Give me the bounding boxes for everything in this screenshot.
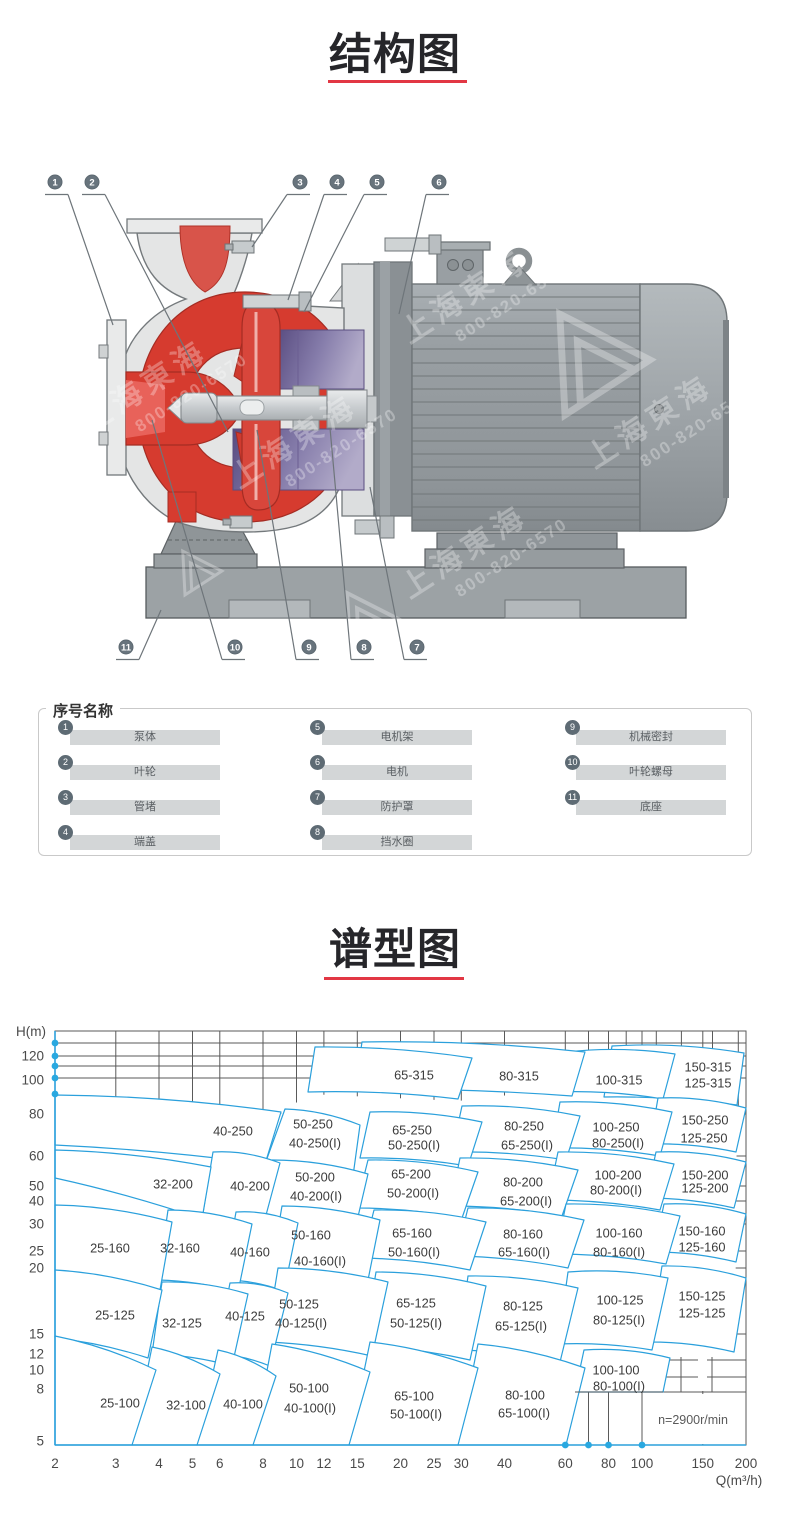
svg-text:5: 5	[189, 1456, 197, 1471]
svg-text:65-160: 65-160	[392, 1226, 432, 1241]
svg-text:25-100: 25-100	[100, 1396, 140, 1411]
svg-text:125-200: 125-200	[682, 1181, 729, 1196]
svg-text:50-160: 50-160	[291, 1228, 331, 1243]
svg-text:25: 25	[426, 1456, 441, 1471]
svg-text:50-200: 50-200	[295, 1170, 335, 1185]
svg-text:100-100: 100-100	[593, 1363, 640, 1378]
svg-text:125-160: 125-160	[679, 1240, 726, 1255]
svg-text:25: 25	[29, 1244, 44, 1259]
svg-text:65-200: 65-200	[391, 1167, 431, 1182]
svg-text:50-160(I): 50-160(I)	[388, 1245, 440, 1260]
svg-text:150-315: 150-315	[685, 1060, 732, 1075]
svg-text:100: 100	[631, 1456, 654, 1471]
svg-text:40-100: 40-100	[223, 1397, 263, 1412]
svg-text:2: 2	[89, 178, 94, 189]
svg-text:100-315: 100-315	[596, 1073, 643, 1088]
svg-text:40-125: 40-125	[225, 1309, 265, 1324]
svg-text:60: 60	[29, 1149, 44, 1164]
svg-text:200: 200	[735, 1456, 758, 1471]
svg-text:40-100(I): 40-100(I)	[284, 1401, 336, 1416]
svg-text:40-160: 40-160	[230, 1245, 270, 1260]
svg-text:80-200: 80-200	[503, 1175, 543, 1190]
svg-text:80-125: 80-125	[503, 1299, 543, 1314]
svg-text:1: 1	[52, 178, 58, 189]
svg-text:150: 150	[692, 1456, 715, 1471]
svg-text:50-200(I): 50-200(I)	[387, 1186, 439, 1201]
svg-text:40-200: 40-200	[230, 1179, 270, 1194]
svg-text:40-250: 40-250	[213, 1124, 253, 1139]
svg-text:65-100(I): 65-100(I)	[498, 1406, 550, 1421]
svg-text:9: 9	[306, 643, 311, 654]
svg-text:15: 15	[350, 1456, 365, 1471]
svg-text:60: 60	[558, 1456, 573, 1471]
svg-text:80-250(I): 80-250(I)	[592, 1136, 644, 1151]
svg-text:65-125(I): 65-125(I)	[495, 1319, 547, 1334]
svg-text:125-250: 125-250	[681, 1131, 728, 1146]
svg-text:65-250: 65-250	[392, 1123, 432, 1138]
svg-text:32-125: 32-125	[162, 1316, 202, 1331]
svg-text:4: 4	[155, 1456, 163, 1471]
svg-text:40-160(I): 40-160(I)	[294, 1254, 346, 1269]
svg-text:80-250: 80-250	[504, 1119, 544, 1134]
svg-text:11: 11	[121, 643, 132, 654]
svg-text:40: 40	[29, 1194, 44, 1209]
svg-text:15: 15	[29, 1327, 44, 1342]
svg-text:Q(m³/h): Q(m³/h)	[716, 1473, 763, 1488]
svg-text:25-160: 25-160	[90, 1241, 130, 1256]
svg-text:50-250(I): 50-250(I)	[388, 1138, 440, 1153]
svg-text:80-160: 80-160	[503, 1227, 543, 1242]
svg-text:100: 100	[21, 1073, 44, 1088]
svg-text:8: 8	[259, 1456, 267, 1471]
svg-text:12: 12	[29, 1347, 44, 1362]
svg-text:100-125: 100-125	[597, 1293, 644, 1308]
svg-text:25-125: 25-125	[95, 1308, 135, 1323]
svg-text:3: 3	[112, 1456, 120, 1471]
svg-text:50: 50	[29, 1179, 44, 1194]
svg-text:65-125: 65-125	[396, 1296, 436, 1311]
svg-text:32-160: 32-160	[160, 1241, 200, 1256]
svg-text:80-160(I): 80-160(I)	[593, 1245, 645, 1260]
svg-text:65-250(I): 65-250(I)	[501, 1138, 553, 1153]
svg-text:80-100(I): 80-100(I)	[593, 1379, 645, 1394]
svg-text:40-200(I): 40-200(I)	[290, 1189, 342, 1204]
svg-text:125-315: 125-315	[685, 1076, 732, 1091]
svg-text:50-125(I): 50-125(I)	[390, 1316, 442, 1331]
svg-text:10: 10	[29, 1363, 44, 1378]
svg-text:65-100: 65-100	[394, 1389, 434, 1404]
svg-text:8: 8	[36, 1382, 44, 1397]
svg-text:100-200: 100-200	[595, 1168, 642, 1183]
svg-text:40-250(I): 40-250(I)	[289, 1136, 341, 1151]
svg-text:100-160: 100-160	[596, 1226, 643, 1241]
svg-text:120: 120	[21, 1049, 44, 1064]
svg-text:6: 6	[216, 1456, 224, 1471]
svg-text:6: 6	[436, 178, 441, 189]
svg-text:10: 10	[289, 1456, 304, 1471]
svg-text:125-125: 125-125	[679, 1306, 726, 1321]
svg-text:4: 4	[334, 178, 340, 189]
svg-text:80-315: 80-315	[499, 1069, 539, 1084]
svg-text:50-125: 50-125	[279, 1297, 319, 1312]
svg-text:100-250: 100-250	[593, 1120, 640, 1135]
svg-text:65-315: 65-315	[394, 1068, 434, 1083]
svg-text:50-100: 50-100	[289, 1381, 329, 1396]
svg-text:32-200: 32-200	[153, 1177, 193, 1192]
svg-text:30: 30	[29, 1217, 44, 1232]
svg-text:80: 80	[601, 1456, 616, 1471]
svg-text:2: 2	[51, 1456, 59, 1471]
svg-text:10: 10	[230, 643, 241, 654]
svg-text:3: 3	[297, 178, 302, 189]
svg-text:80-125(I): 80-125(I)	[593, 1313, 645, 1328]
svg-text:150-250: 150-250	[682, 1113, 729, 1128]
svg-text:32-100: 32-100	[166, 1398, 206, 1413]
svg-text:n=2900r/min: n=2900r/min	[658, 1413, 728, 1427]
svg-text:H(m): H(m)	[16, 1024, 46, 1039]
svg-text:8: 8	[361, 643, 366, 654]
svg-text:5: 5	[36, 1434, 44, 1449]
svg-text:50-100(I): 50-100(I)	[390, 1407, 442, 1422]
svg-text:20: 20	[393, 1456, 408, 1471]
svg-text:20: 20	[29, 1261, 44, 1276]
svg-text:65-200(I): 65-200(I)	[500, 1194, 552, 1209]
svg-text:40-125(I): 40-125(I)	[275, 1316, 327, 1331]
svg-text:12: 12	[316, 1456, 331, 1471]
svg-text:30: 30	[454, 1456, 469, 1471]
svg-text:80: 80	[29, 1107, 44, 1122]
svg-text:7: 7	[414, 643, 419, 654]
svg-text:50-250: 50-250	[293, 1117, 333, 1132]
svg-text:40: 40	[497, 1456, 512, 1471]
svg-text:80-200(I): 80-200(I)	[590, 1183, 642, 1198]
svg-text:5: 5	[374, 178, 380, 189]
svg-text:150-125: 150-125	[679, 1289, 726, 1304]
svg-text:65-160(I): 65-160(I)	[498, 1245, 550, 1260]
svg-text:150-160: 150-160	[679, 1224, 726, 1239]
svg-text:80-100: 80-100	[505, 1388, 545, 1403]
